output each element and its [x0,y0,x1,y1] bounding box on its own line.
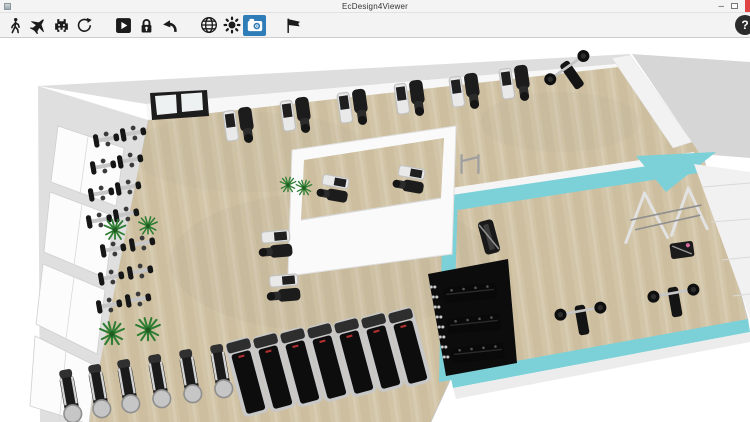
flag-icon [285,17,302,34]
lock-view-button[interactable] [135,15,158,36]
entrance-door [150,90,209,120]
titlebar: EcDesign4Viewer – [0,0,750,13]
space-invader-icon [53,17,70,34]
airplane-icon [30,17,47,34]
rotate-view-button[interactable] [73,15,96,36]
walk-tool-button[interactable] [4,15,27,36]
play-icon [115,17,132,34]
undo-arrow-icon [161,17,178,34]
undo-button[interactable] [158,15,181,36]
app-window: EcDesign4Viewer – [0,0,750,422]
padlock-icon [138,17,155,34]
screenshot-button[interactable] [243,15,266,36]
rotate-view-icon [76,17,93,34]
window-controls: – [718,3,750,9]
camera-icon [246,16,264,34]
flag-button[interactable] [282,15,305,36]
globe-view-button[interactable] [197,15,220,36]
maximize-button[interactable] [731,3,738,9]
globe-icon [200,16,218,34]
window-title: EcDesign4Viewer [0,2,750,11]
minimize-button[interactable]: – [718,4,724,9]
viewport-3d[interactable] [0,38,750,422]
help-button[interactable]: ? [735,15,750,35]
fly-tool-button[interactable] [27,15,50,36]
gym-floorplan-scene [0,38,750,422]
sun-icon [223,16,241,34]
walking-person-icon [7,17,24,34]
inner-room [288,126,456,276]
play-walkthrough-button[interactable] [112,15,135,36]
question-mark-icon: ? [741,18,748,32]
toolbar: ? [0,13,750,38]
cable-machine [669,241,694,260]
game-mode-button[interactable] [50,15,73,36]
brightness-button[interactable] [220,15,243,36]
